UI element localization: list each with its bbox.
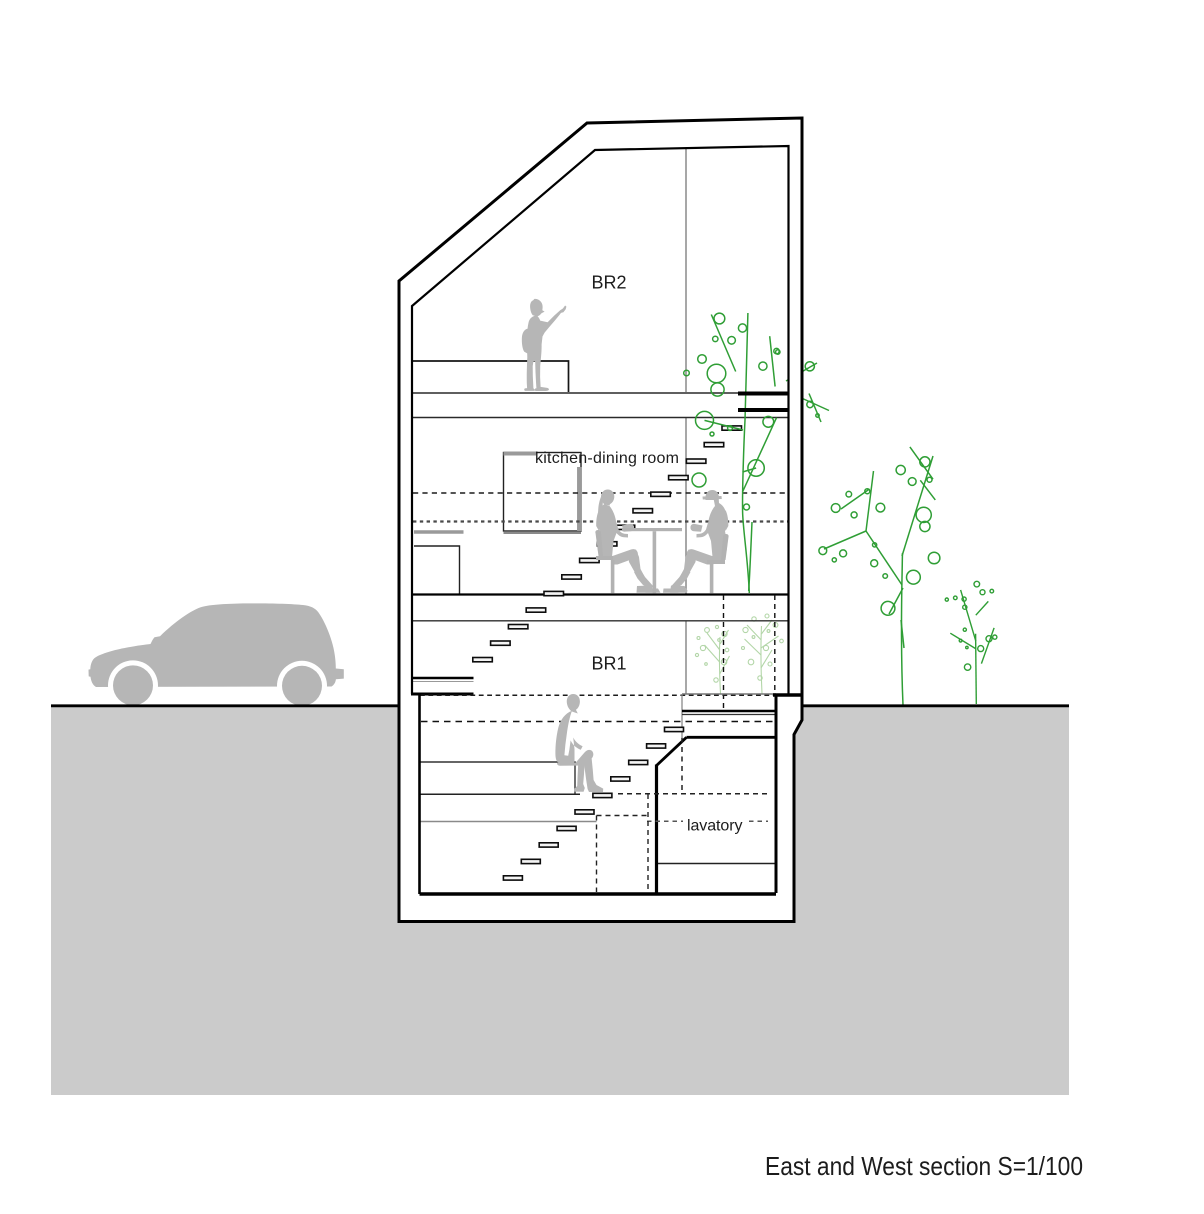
svg-text:kitchen-dining room: kitchen-dining room xyxy=(535,450,679,467)
svg-text:BR2: BR2 xyxy=(592,273,627,293)
svg-text:lavatory: lavatory xyxy=(687,818,743,835)
svg-text:East and West section S=1/100: East and West section S=1/100 xyxy=(765,1151,1083,1181)
svg-text:BR1: BR1 xyxy=(592,654,627,674)
